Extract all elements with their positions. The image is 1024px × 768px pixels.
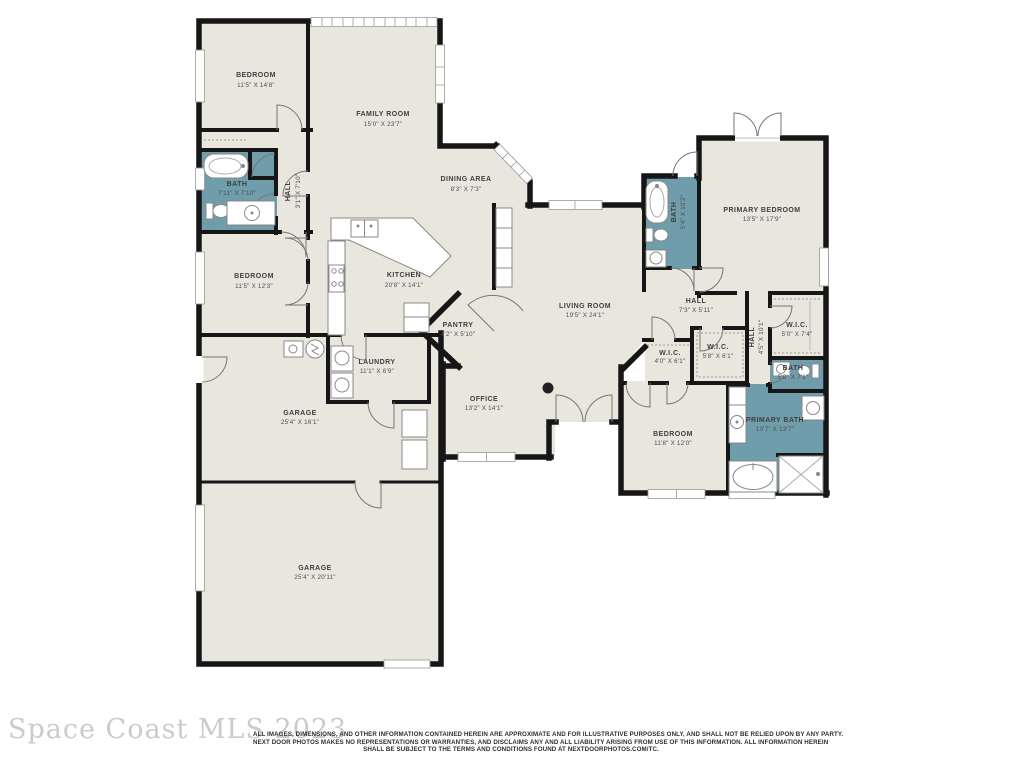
- room-dims-living-room: 19'5" X 24'1": [566, 312, 604, 319]
- room-label-laundry: LAUNDRY: [358, 359, 395, 366]
- room-dims-primary-bath: 10'7" X 13'7": [756, 426, 794, 433]
- room-label-hall-2: HALL: [686, 298, 707, 305]
- room-label-pantry: PANTRY: [443, 322, 474, 329]
- room-label-bedroom-right: BEDROOM: [653, 431, 693, 438]
- room-dims-garage-2: 25'4" X 20'11": [294, 574, 335, 581]
- dryer-icon: [331, 373, 353, 398]
- window-bath1-west: [196, 168, 205, 190]
- disclaimer-line-1: ALL IMAGES, DIMENSIONS, AND OTHER INFORM…: [253, 731, 769, 739]
- room-dims-wic-2: 5'8" X 6'1": [703, 353, 734, 360]
- vanity-sink-2: [646, 250, 666, 267]
- disclaimer-line-2: NEXT DOOR PHOTOS MAKES NO REPRESENTATION…: [253, 739, 769, 747]
- room-label-bath-3: BATH: [783, 365, 804, 372]
- room-dims-wic-3: 5'0" X 7'4": [782, 331, 813, 338]
- window-primary-east: [820, 248, 829, 286]
- room-dims-bedroom-mid-left: 11'5" X 12'3": [235, 283, 273, 290]
- toilet-2: [646, 228, 668, 242]
- disclaimer-line-3: SHALL BE SUBJECT TO THE TERMS AND CONDIT…: [253, 746, 769, 754]
- room-label-primary-bedroom: PRIMARY BEDROOM: [723, 207, 800, 214]
- primary-bathtub: [729, 461, 777, 492]
- floor-family-dining: [305, 21, 531, 233]
- window-garage2-south: [384, 660, 430, 668]
- disclaimer-text: ALL IMAGES, DIMENSIONS, AND OTHER INFORM…: [253, 731, 769, 754]
- room-dims-primary-bedroom: 13'5" X 17'9": [743, 216, 781, 223]
- room-dims-office: 13'2" X 14'1": [465, 405, 503, 412]
- room-dims-kitchen: 20'8" X 14'1": [385, 282, 423, 289]
- room-label-wic-1: W.I.C.: [659, 350, 681, 357]
- room-label-wic-2: W.I.C.: [707, 344, 729, 351]
- room-label-kitchen: KITCHEN: [387, 272, 421, 279]
- room-dims-bath-1: 7'11" X 7'10": [218, 190, 256, 197]
- room-label-primary-bath: PRIMARY BATH: [746, 417, 804, 424]
- refrigerator-icon: [404, 303, 429, 332]
- door-gap-garage-west: [196, 356, 204, 383]
- room-dims-bedroom-top-left: 11'5" X 14'8": [237, 82, 275, 89]
- window-living-top: [549, 201, 602, 210]
- room-label-dining-area: DINING AREA: [441, 176, 492, 183]
- kitchen-west-counter: [328, 241, 345, 335]
- room-label-bath-2: BATH: [671, 202, 678, 223]
- floor-plan-page: BEDROOM 11'5" X 14'8" FAMILY ROOM 15'0" …: [0, 0, 1024, 768]
- room-dims-laundry: 11'1" X 6'9": [360, 368, 394, 375]
- room-dims-bath-2: 5'4" X 10'2": [680, 195, 687, 230]
- toilet-1: [206, 203, 229, 219]
- window-bedroom2-west: [196, 252, 205, 304]
- room-dims-dining-area: 8'3" X 7'3": [451, 186, 482, 193]
- room-dims-bedroom-right: 11'8" X 12'0": [654, 440, 692, 447]
- room-dims-hall-3: 4'5" X 10'1": [758, 320, 765, 355]
- utility-sink-garage: [284, 341, 303, 357]
- bathtub-2: [646, 181, 668, 223]
- water-heater-icon: [306, 340, 324, 358]
- room-label-bedroom-top-left: BEDROOM: [236, 72, 276, 79]
- room-dims-garage-1: 25'4" X 16'1": [281, 419, 319, 426]
- washer-icon: [331, 346, 353, 371]
- room-dims-hall-1: 3'1" X 7'10": [295, 174, 302, 209]
- window-garage2-west: [196, 505, 205, 591]
- room-label-hall-3: HALL: [749, 326, 756, 347]
- room-label-hall-1: HALL: [285, 180, 292, 201]
- room-label-garage-1: GARAGE: [283, 410, 316, 417]
- room-label-living-room: LIVING ROOM: [559, 303, 611, 310]
- room-label-garage-2: GARAGE: [298, 565, 331, 572]
- room-label-bedroom-mid-left: BEDROOM: [234, 273, 274, 280]
- primary-bath-vanity-left: [729, 387, 746, 443]
- room-label-office: OFFICE: [470, 396, 498, 403]
- room-label-family-room: FAMILY ROOM: [356, 111, 410, 118]
- shower: [779, 456, 823, 493]
- primary-bath-vanity-right: [802, 396, 824, 420]
- room-dims-pantry: 4'2" X 5'10": [441, 331, 476, 338]
- room-label-bath-1: BATH: [227, 181, 248, 188]
- room-label-wic-3: W.I.C.: [786, 322, 808, 329]
- room-dims-hall-2: 7'3" X 5'11": [679, 307, 713, 314]
- room-dims-family-room: 15'0" X 23'7": [364, 121, 402, 128]
- ceiling-fan-icon: [543, 383, 554, 394]
- garage-storage-boxes: [402, 410, 427, 469]
- window-bedroom1-west: [196, 50, 205, 102]
- floor-plan-svg: BEDROOM 11'5" X 14'8" FAMILY ROOM 15'0" …: [0, 0, 1024, 768]
- room-dims-wic-1: 4'0" X 6'1": [655, 358, 686, 365]
- room-dims-bath-3: 5'0" X 7'1": [778, 374, 809, 381]
- window-family-east: [436, 45, 445, 103]
- kitchen-tall-cabinets: [496, 208, 512, 287]
- bathtub-1: [204, 154, 248, 178]
